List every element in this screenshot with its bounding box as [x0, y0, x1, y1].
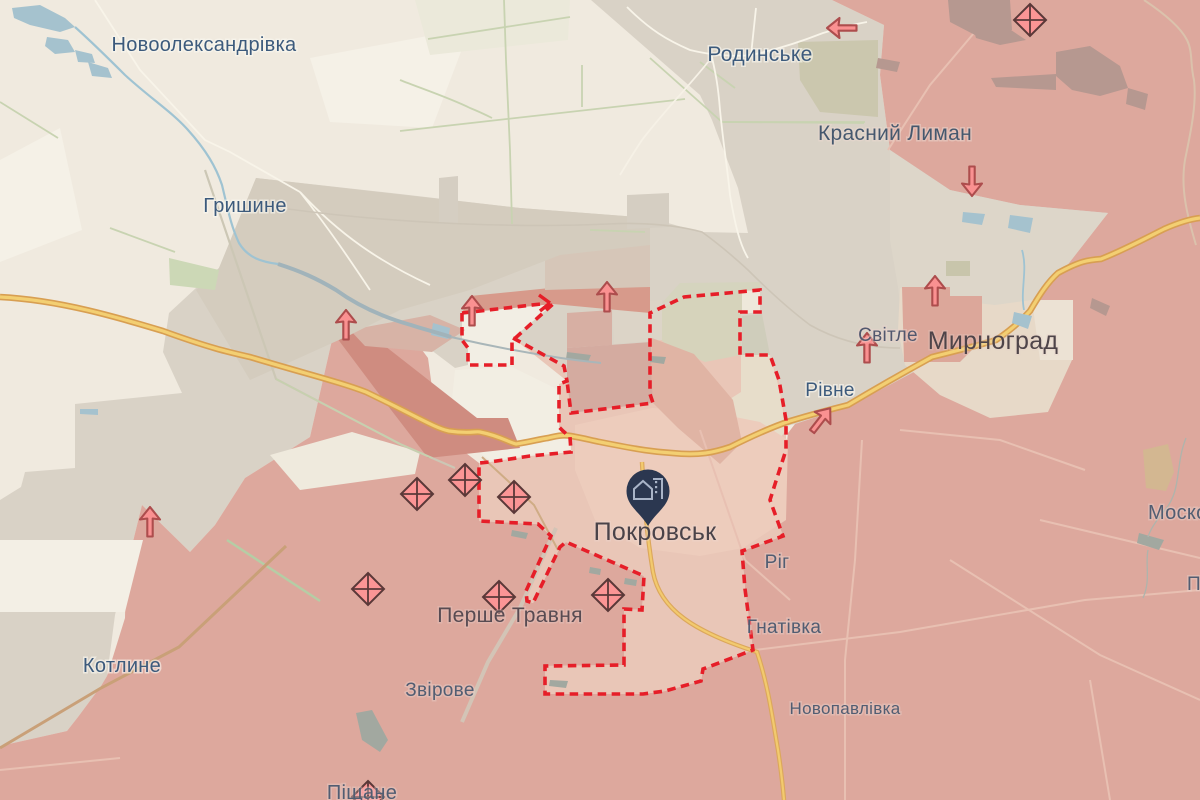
svg-text:Красний Лиман: Красний Лиман — [818, 122, 972, 145]
svg-text:П: П — [1187, 574, 1200, 595]
svg-text:Звірове: Звірове — [405, 680, 474, 701]
svg-text:Покровськ: Покровськ — [594, 518, 718, 546]
svg-text:Гришине: Гришине — [203, 195, 287, 217]
svg-text:Піщане: Піщане — [327, 782, 397, 800]
svg-text:Ріг: Ріг — [765, 552, 790, 573]
svg-text:Новоолександрівка: Новоолександрівка — [112, 34, 298, 56]
svg-text:Рівне: Рівне — [805, 380, 855, 401]
svg-text:Світле: Світле — [858, 325, 918, 346]
svg-text:Мирноград: Мирноград — [928, 327, 1059, 355]
svg-text:Гнатівка: Гнатівка — [747, 617, 822, 638]
svg-text:Родинське: Родинське — [707, 43, 812, 66]
svg-text:Новопавлівка: Новопавлівка — [790, 699, 901, 718]
svg-text:Перше Травня: Перше Травня — [437, 604, 583, 627]
svg-text:Москов: Москов — [1148, 502, 1200, 524]
svg-text:Котлине: Котлине — [83, 655, 161, 677]
